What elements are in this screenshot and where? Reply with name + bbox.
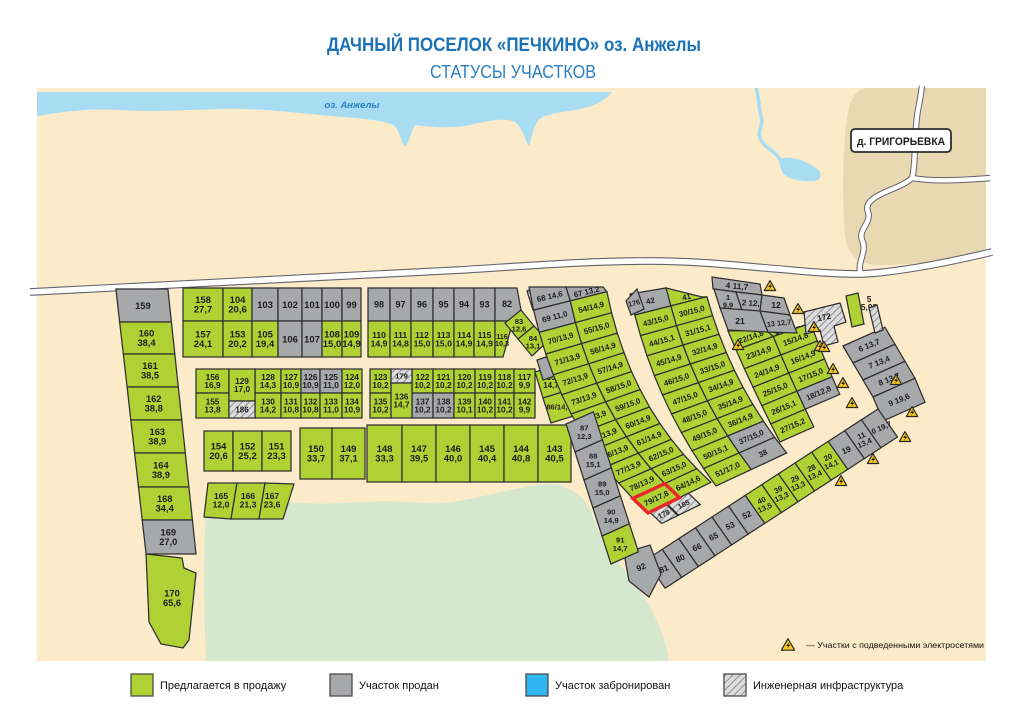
svg-text:11610,3: 11610,3 [495,332,509,348]
svg-text:159: 159 [135,301,151,311]
svg-text:100: 100 [324,300,340,311]
svg-text:107: 107 [304,334,320,345]
svg-text:13311,0: 13311,0 [323,396,339,414]
svg-text:10519,4: 10519,4 [256,330,275,351]
svg-text:15123,3: 15123,3 [267,442,286,463]
svg-text:14440,8: 14440,8 [512,444,531,465]
svg-text:15616,9: 15616,9 [204,372,221,390]
svg-text:11414,9: 11414,9 [456,330,473,349]
svg-text:1429,9: 1429,9 [518,396,532,414]
svg-text:13614,7: 13614,7 [393,391,410,409]
svg-text:12010,2: 12010,2 [456,372,473,390]
svg-text:12210,2: 12210,2 [414,372,431,390]
svg-text:16621,3: 16621,3 [240,491,257,510]
svg-text:13110,8: 13110,8 [283,396,300,414]
svg-text:14010,2: 14010,2 [477,396,494,414]
svg-text:15420,6: 15420,6 [209,442,228,463]
svg-text:14110,2: 14110,2 [496,396,513,414]
svg-text:16512,0: 16512,0 [213,491,230,510]
svg-text:15827,7: 15827,7 [194,295,213,316]
svg-text:12814,3: 12814,3 [260,372,277,390]
svg-text:12917,0: 12917,0 [234,376,251,394]
svg-text:13810,2: 13810,2 [435,396,452,414]
svg-text:10914,9: 10914,9 [342,330,361,351]
svg-text:179: 179 [395,372,408,381]
svg-text:16723,6: 16723,6 [264,491,281,510]
svg-text:94: 94 [459,300,469,310]
svg-text:102: 102 [282,300,298,311]
svg-text:186: 186 [235,405,249,414]
svg-text:103: 103 [257,300,273,311]
svg-text:СТАТУСЫ УЧАСТКОВ: СТАТУСЫ УЧАСТКОВ [430,61,596,82]
svg-text:14739,5: 14739,5 [410,444,429,465]
svg-text:16238,8: 16238,8 [145,394,163,413]
svg-text:82: 82 [502,299,512,309]
svg-text:17065,6: 17065,6 [163,589,181,608]
svg-text:11514,9: 11514,9 [476,330,493,349]
svg-text:16138,5: 16138,5 [141,361,159,380]
svg-text:14937,1: 14937,1 [339,444,358,465]
svg-text:16038,4: 16038,4 [137,329,156,348]
svg-text:10420,6: 10420,6 [228,295,247,316]
svg-text:11810,2: 11810,2 [496,372,513,390]
svg-text:4 11,7: 4 11,7 [725,280,749,292]
svg-text:98: 98 [374,300,384,310]
svg-text:11910,2: 11910,2 [477,372,494,390]
svg-text:16927,0: 16927,0 [159,528,177,547]
svg-text:11215,0: 11215,0 [414,330,431,349]
svg-text:15225,2: 15225,2 [238,442,257,463]
svg-text:Участок забронирован: Участок забронирован [555,680,670,692]
svg-text:97: 97 [395,300,405,310]
svg-text:15513,8: 15513,8 [204,396,221,414]
svg-text:12610,9: 12610,9 [302,372,319,390]
svg-text:13014,2: 13014,2 [260,396,277,414]
svg-text:Инженерная инфраструктура: Инженерная инфраструктура [753,680,904,692]
svg-text:13710,2: 13710,2 [414,396,431,414]
svg-text:16338,9: 16338,9 [148,427,166,446]
svg-text:16438,9: 16438,9 [152,461,170,480]
svg-text:12710,9: 12710,9 [283,372,300,390]
svg-text:14640,0: 14640,0 [444,444,463,465]
svg-text:95: 95 [438,300,448,310]
svg-text:12310,2: 12310,2 [372,372,389,390]
svg-text:99: 99 [346,300,357,311]
svg-text:оз. Анжелы: оз. Анжелы [325,100,380,111]
svg-text:1179,9: 1179,9 [518,372,532,390]
svg-text:11014,9: 11014,9 [371,330,388,349]
svg-text:12412,0: 12412,0 [344,372,361,390]
svg-text:16834,4: 16834,4 [156,494,175,513]
svg-text:13510,2: 13510,2 [372,396,389,414]
svg-text:12110,2: 12110,2 [435,372,452,390]
svg-text:96: 96 [417,300,427,310]
svg-text:— Участки с подведенными элект: — Участки с подведенными электросетями [806,640,984,650]
svg-text:13410,9: 13410,9 [344,396,361,414]
svg-text:15033,7: 15033,7 [307,444,326,465]
svg-text:15724,1: 15724,1 [194,330,213,351]
svg-text:11114,8: 11114,8 [392,330,409,349]
svg-text:11315,0: 11315,0 [435,330,452,349]
svg-text:13910,1: 13910,1 [456,396,473,414]
svg-text:13210,8: 13210,8 [302,396,319,414]
svg-text:12511,0: 12511,0 [323,372,339,390]
svg-text:10815,0: 10815,0 [323,330,342,351]
svg-text:14833,3: 14833,3 [375,444,394,465]
svg-text:15320,2: 15320,2 [228,330,247,351]
svg-text:14540,4: 14540,4 [478,444,497,465]
svg-text:12: 12 [771,300,781,310]
svg-text:101: 101 [304,300,321,311]
svg-text:Участок продан: Участок продан [359,680,439,692]
svg-text:106: 106 [282,334,298,345]
svg-text:ДАЧНЫЙ ПОСЕЛОК «ПЕЧКИНО» оз. А: ДАЧНЫЙ ПОСЕЛОК «ПЕЧКИНО» оз. Анжелы [327,32,701,56]
svg-text:93: 93 [479,300,489,310]
svg-text:д. ГРИГОРЬЕВКА: д. ГРИГОРЬЕВКА [857,136,945,148]
svg-text:Предлагается в продажу: Предлагается в продажу [160,680,287,692]
svg-text:21: 21 [735,316,745,326]
svg-text:14340,5: 14340,5 [545,444,564,465]
